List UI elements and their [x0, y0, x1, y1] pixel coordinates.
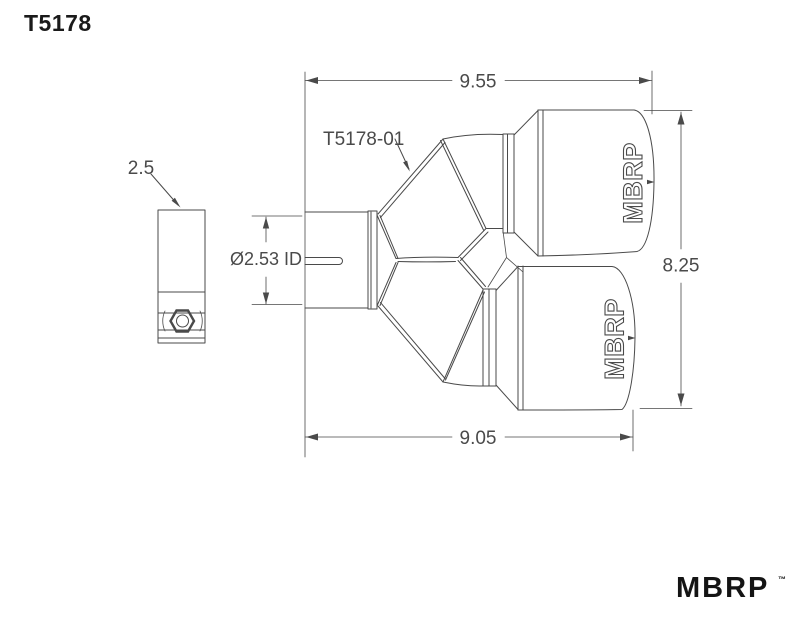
brand-logo: MBRP ™	[676, 572, 786, 604]
lower-branch-pipe	[378, 231, 523, 386]
part-number-label: T5178-01	[323, 129, 404, 150]
dim-bottom-value: 9.05	[460, 428, 497, 449]
inlet-slot	[305, 258, 343, 265]
top-tip-brand-logo: MBRP	[618, 142, 648, 224]
dim-inlet-arrow-bottom	[263, 293, 269, 305]
dim-inlet-value: Ø2.53 ID	[230, 249, 302, 269]
upper-branch-outer-edge	[378, 139, 445, 218]
dim-height-arrow-top	[678, 113, 685, 125]
drawing-title: T5178	[24, 10, 92, 36]
clamp-body-outline	[158, 210, 205, 343]
upper-branch-inner-edge	[458, 229, 503, 261]
clamp-saddle-arcs	[163, 311, 203, 331]
brand-trademark: ™	[778, 575, 786, 584]
dimension-height-right: 8.25	[640, 111, 699, 409]
top-tip-cone	[514, 111, 538, 257]
clamp-hex-nut	[171, 311, 195, 332]
technical-drawing: T5178 2.5 MBRP	[0, 0, 800, 618]
dimension-inlet-id: Ø2.53 ID	[230, 216, 302, 305]
dim-inlet-arrow-top	[263, 217, 269, 229]
dim-height-arrow-bottom	[678, 394, 685, 406]
top-tip-weld-lines	[538, 110, 543, 256]
lower-weld-band	[483, 289, 496, 386]
upper-branch-miter-seam	[441, 139, 487, 230]
top-tip-tangent-mark	[647, 180, 655, 184]
dim-height-value: 8.25	[663, 256, 700, 277]
crotch-seam	[396, 257, 458, 262]
brand-logo-text: MBRP	[676, 572, 769, 604]
dim-top-arrow-left	[306, 77, 318, 84]
dim-bottom-arrow-left	[306, 434, 318, 441]
inlet-cone	[377, 215, 398, 306]
upper-weld-band	[503, 134, 514, 233]
dim-top-value: 9.55	[460, 72, 497, 93]
lower-branch-bottom-edge	[443, 382, 483, 386]
part-label-arrowhead	[403, 161, 410, 172]
lower-branch-outer-edge	[378, 303, 445, 383]
upper-branch-top-edge	[443, 134, 503, 139]
dimension-overall-bottom: 9.05	[305, 410, 633, 451]
inlet-pipe	[305, 211, 458, 309]
dim-top-arrow-right	[639, 77, 651, 84]
drawing-sheet: T5178 2.5 MBRP	[0, 0, 800, 618]
clamp-bolt-circle	[177, 315, 189, 327]
exhaust-tip-top: MBRP	[514, 110, 655, 256]
inlet-pipe-outline	[305, 211, 377, 309]
bottom-tip-weld-lines	[518, 266, 523, 410]
clamp-diameter-label: 2.5	[128, 158, 154, 179]
lower-branch-inner-edge	[458, 258, 486, 290]
side-view-clamp: 2.5	[128, 158, 205, 343]
lower-branch-miter-seam	[443, 290, 485, 382]
part-label-callout: T5178-01	[323, 129, 410, 172]
bottom-tip-cone	[496, 267, 518, 410]
upper-branch-pipe	[378, 134, 514, 261]
dim-bottom-arrow-right	[620, 434, 632, 441]
exhaust-tip-bottom: MBRP	[496, 266, 636, 410]
bottom-tip-brand-logo: MBRP	[600, 298, 630, 380]
